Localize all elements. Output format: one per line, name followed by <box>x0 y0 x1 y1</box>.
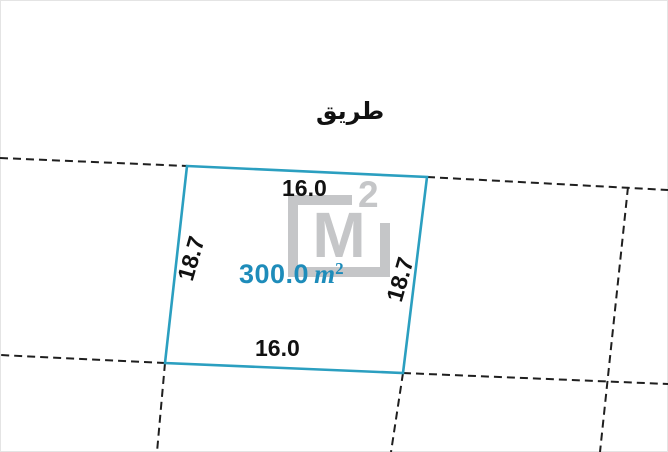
area-unit: m <box>314 259 335 289</box>
land-plot-diagram: 2 M طريق 16.0 16.0 18.7 18.7 300.0m2 <box>0 0 668 452</box>
neighbor-boundary-bottom-left <box>0 355 165 363</box>
neighbor-boundary-top-right <box>427 177 668 190</box>
dimension-bottom: 16.0 <box>255 335 300 362</box>
road-label: طريق <box>316 97 384 125</box>
neighbor-boundary-left-vertical <box>157 363 165 452</box>
neighbor-boundary-bottom-right <box>403 373 668 384</box>
area-value: 300.0 <box>239 259 309 289</box>
m2-watermark-letter: M <box>288 204 390 266</box>
area-label: 300.0m2 <box>239 259 344 290</box>
neighbor-boundary-right-vertical <box>600 187 628 452</box>
dimension-top: 16.0 <box>282 175 327 202</box>
area-exponent: 2 <box>335 259 344 278</box>
neighbor-boundary-top-left <box>0 158 187 166</box>
neighbor-boundary-mid-vertical <box>391 373 403 452</box>
